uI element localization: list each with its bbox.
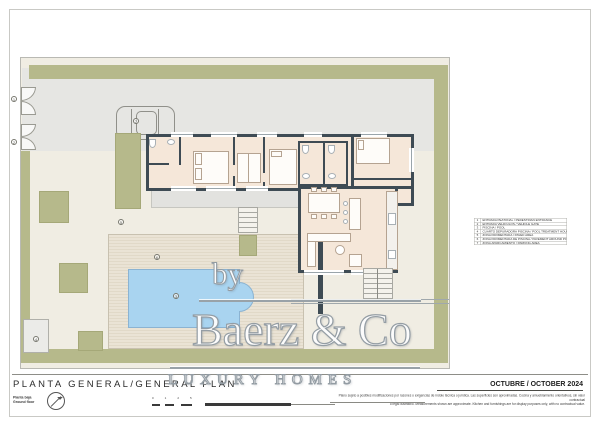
window bbox=[206, 186, 236, 191]
toilet-icon bbox=[149, 139, 156, 148]
window bbox=[361, 132, 387, 137]
window bbox=[304, 132, 322, 137]
sink-icon bbox=[167, 139, 175, 145]
scale-tick: 0 bbox=[152, 397, 154, 400]
chair-icon bbox=[321, 187, 327, 192]
disclaimer-text: Plano sujeto a posibles modificaciones p… bbox=[330, 394, 585, 407]
watermark-rule-bottom bbox=[170, 367, 420, 369]
callout-marker: 5 bbox=[118, 219, 124, 225]
legend-label: ZONA PAVIMENTADA DE PISCINA / PAVEMENT A… bbox=[481, 237, 567, 240]
sink-icon bbox=[328, 173, 336, 179]
chair-icon bbox=[331, 187, 337, 192]
legend-label: ZONA PAVIMENTADA / PAVED AREA bbox=[481, 234, 567, 237]
stool-icon bbox=[343, 201, 348, 206]
chair-icon bbox=[311, 214, 317, 219]
kitchen-sink-icon bbox=[388, 250, 396, 259]
stool-icon bbox=[343, 210, 348, 215]
window bbox=[409, 148, 414, 172]
scale-segment bbox=[291, 404, 335, 405]
callout-marker: 1 bbox=[11, 96, 17, 102]
wall-segment bbox=[233, 137, 235, 165]
car-roof bbox=[136, 111, 157, 135]
watermark-brand: Baerz & Co bbox=[192, 303, 412, 356]
legend-label: PISCINA / POOL bbox=[481, 226, 567, 229]
chair-icon bbox=[321, 214, 327, 219]
pillow-icon bbox=[195, 168, 202, 180]
planter-hedge-tall bbox=[115, 133, 141, 209]
scale-segment bbox=[165, 404, 174, 406]
armchair-icon bbox=[349, 254, 362, 267]
stool-icon bbox=[343, 219, 348, 224]
scale-bar: 0 1 2 5 bbox=[150, 397, 340, 409]
callout-marker: 4 bbox=[33, 336, 39, 342]
scale-segment bbox=[152, 404, 160, 406]
wall-segment bbox=[179, 137, 181, 165]
sliding-door bbox=[304, 270, 344, 275]
callout-marker: 3 bbox=[173, 293, 179, 299]
hedge-top bbox=[29, 65, 434, 79]
callout-marker: 7 bbox=[133, 118, 139, 124]
paved-terrace bbox=[151, 189, 301, 208]
scale-tick: 2 bbox=[177, 397, 179, 400]
watermark-tagline: LUXURY HOMES bbox=[168, 372, 357, 389]
wall-segment bbox=[149, 163, 169, 165]
window bbox=[257, 132, 277, 137]
garden-steps bbox=[238, 207, 258, 233]
toilet-icon bbox=[328, 145, 335, 154]
dining-table-icon bbox=[308, 193, 340, 213]
stairs-rail bbox=[377, 269, 378, 300]
sink-icon bbox=[302, 173, 310, 179]
pillow-icon bbox=[271, 151, 282, 157]
pillow-icon bbox=[358, 140, 364, 150]
wardrobe-rail bbox=[248, 154, 249, 182]
planter-square bbox=[78, 331, 103, 351]
window bbox=[171, 132, 193, 137]
pillow-icon bbox=[195, 153, 202, 165]
scale-segment bbox=[205, 403, 291, 406]
window bbox=[246, 186, 268, 191]
car-rear-line bbox=[158, 109, 159, 135]
watermark-rule-top bbox=[199, 300, 421, 302]
north-arrow-compass bbox=[47, 392, 65, 410]
legend-row: 7ZONA APARCAMIENTO / PARKING AREA bbox=[474, 241, 567, 245]
legend-label: CUARTO DEPURADORA PISCINA / POOL TREATME… bbox=[481, 230, 567, 233]
kitchen-island-icon bbox=[349, 198, 361, 230]
disclaimer-line-2: o legal ilustrativo. Measurements shown … bbox=[330, 403, 585, 407]
car-windshield-line bbox=[131, 109, 132, 135]
callout-marker: 2 bbox=[11, 139, 17, 145]
legend-table: 1ENTRADA PEATONAL / PEDESTRIAN ENTRANCE … bbox=[474, 219, 567, 250]
wall-segment bbox=[398, 186, 414, 189]
signature-line bbox=[330, 402, 425, 403]
wall-segment bbox=[323, 143, 325, 184]
stairs bbox=[363, 268, 393, 301]
divider-line bbox=[437, 390, 583, 391]
window bbox=[211, 132, 237, 137]
date-label: OCTUBRE / OCTOBER 2024 bbox=[437, 381, 583, 388]
deck-planter bbox=[239, 235, 257, 256]
planter-square bbox=[39, 191, 69, 223]
chair-icon bbox=[311, 187, 317, 192]
plan-sheet: 1 2 3 4 5 6 7 1ENTRADA PEATONAL / PEDEST… bbox=[0, 0, 600, 425]
legend-label: ENTRADA PEATONAL / PEDESTRIAN ENTRANCE bbox=[481, 219, 567, 222]
callout-marker: 6 bbox=[154, 254, 160, 260]
legend-label: ENTRADA VEHICULOS / VEHICLE GATE bbox=[481, 222, 567, 225]
wall-segment bbox=[263, 137, 265, 173]
wardrobe-icon bbox=[237, 153, 261, 183]
coffee-table-icon bbox=[335, 245, 345, 255]
planter-square bbox=[59, 263, 88, 293]
toilet-icon bbox=[302, 145, 309, 154]
chair-icon bbox=[331, 214, 337, 219]
scale-segment bbox=[181, 404, 192, 406]
sofa-icon bbox=[307, 241, 316, 267]
scale-tick: 5 bbox=[190, 397, 192, 400]
hob-icon bbox=[388, 213, 396, 225]
window bbox=[171, 186, 196, 191]
hedge-right bbox=[434, 65, 448, 363]
wall-segment bbox=[354, 178, 412, 180]
scale-tick: 1 bbox=[165, 397, 167, 400]
watermark-by: by bbox=[212, 256, 243, 292]
legend-label: ZONA APARCAMIENTO / PARKING AREA bbox=[481, 241, 567, 244]
